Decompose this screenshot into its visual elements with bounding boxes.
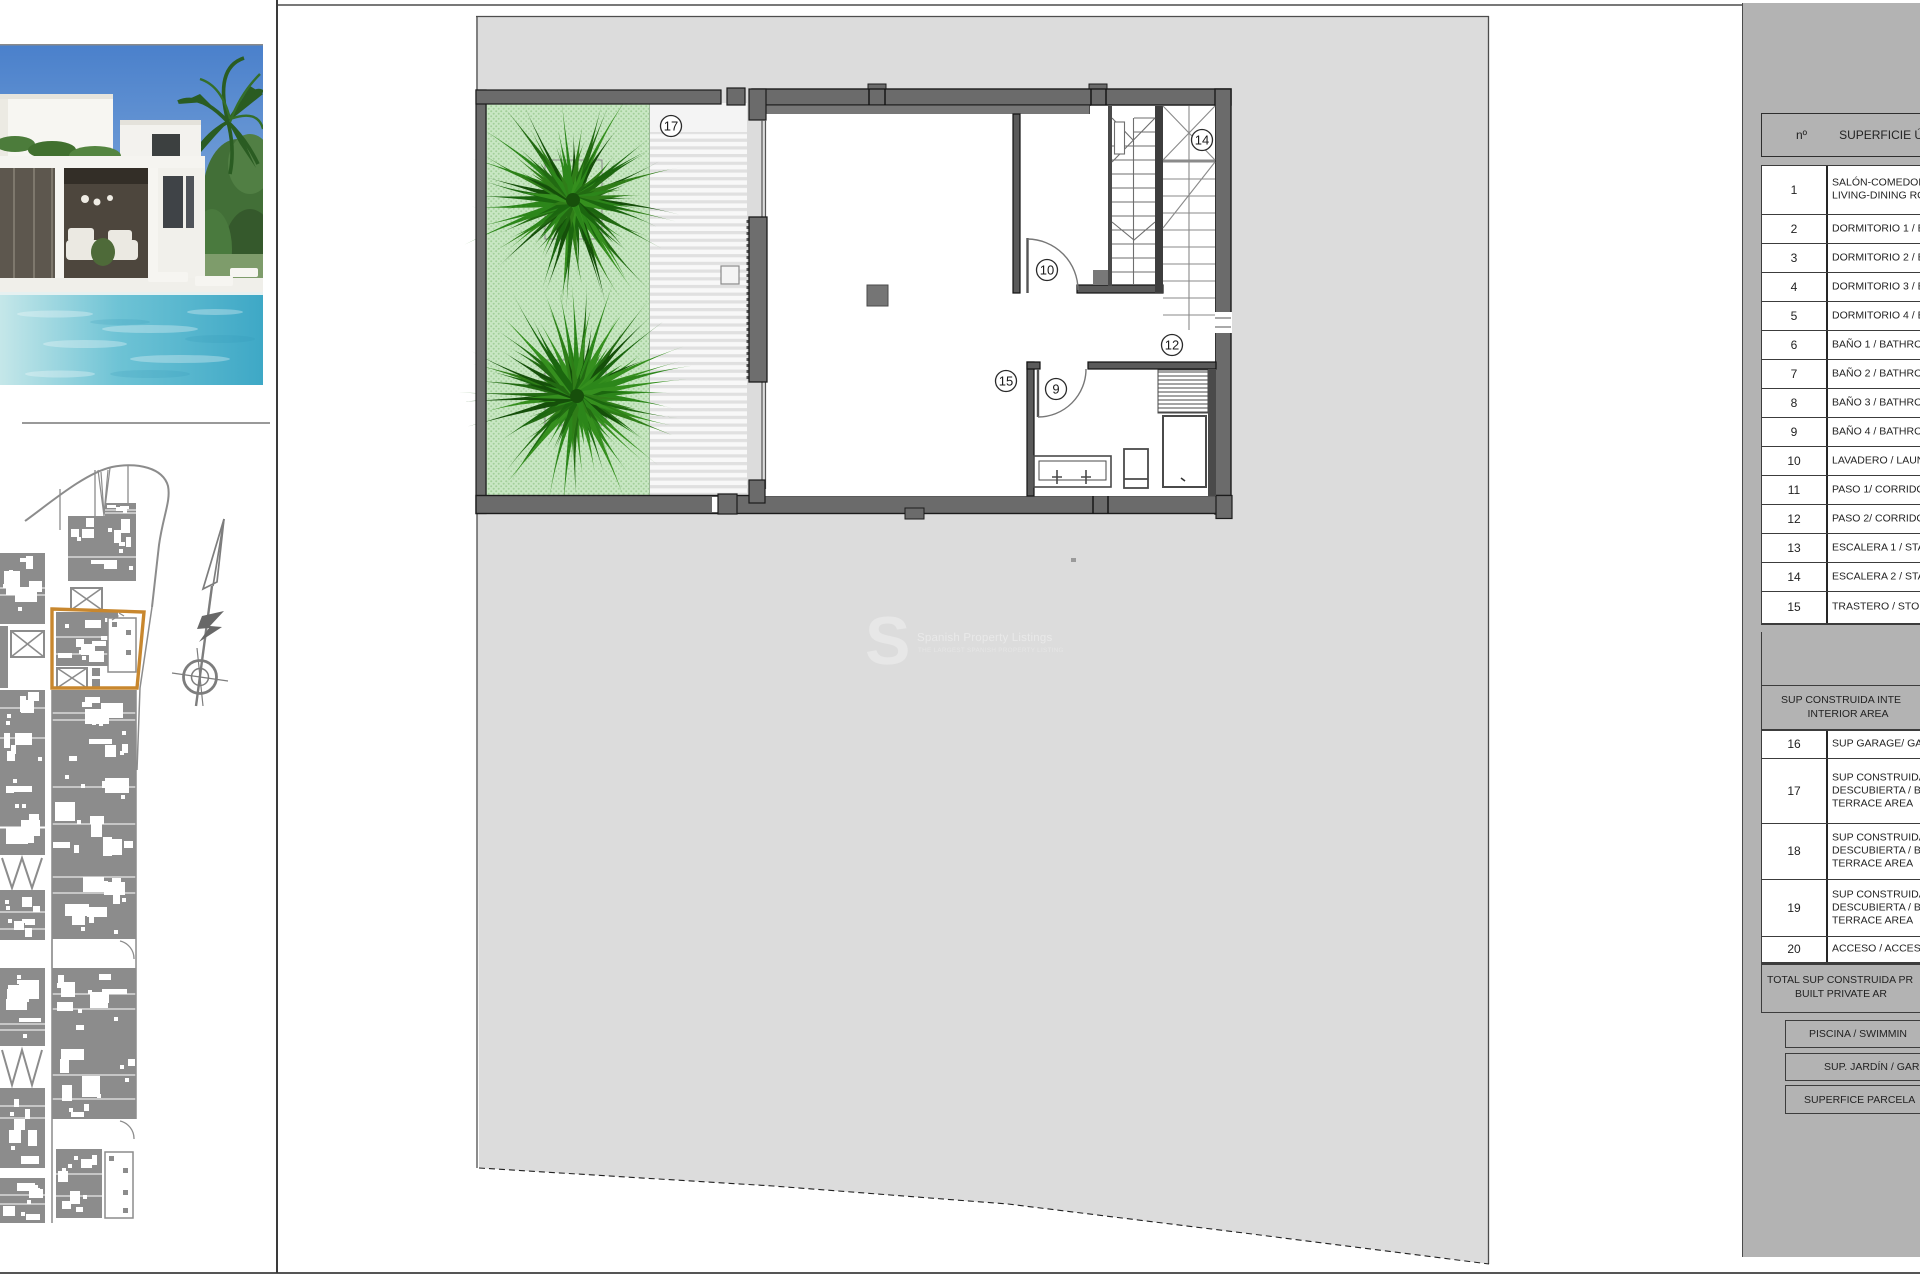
svg-text:17: 17	[664, 119, 678, 134]
svg-text:12: 12	[1165, 338, 1179, 353]
svg-text:15: 15	[999, 374, 1013, 389]
svg-text:14: 14	[1195, 133, 1209, 148]
svg-text:9: 9	[1052, 382, 1059, 397]
svg-text:THE LARGEST SPANISH PROPERTY L: THE LARGEST SPANISH PROPERTY LISTING	[918, 647, 1064, 654]
svg-text:10: 10	[1040, 263, 1054, 278]
svg-text:Spanish Property Listings: Spanish Property Listings	[917, 632, 1052, 644]
svg-text:S: S	[865, 603, 910, 679]
